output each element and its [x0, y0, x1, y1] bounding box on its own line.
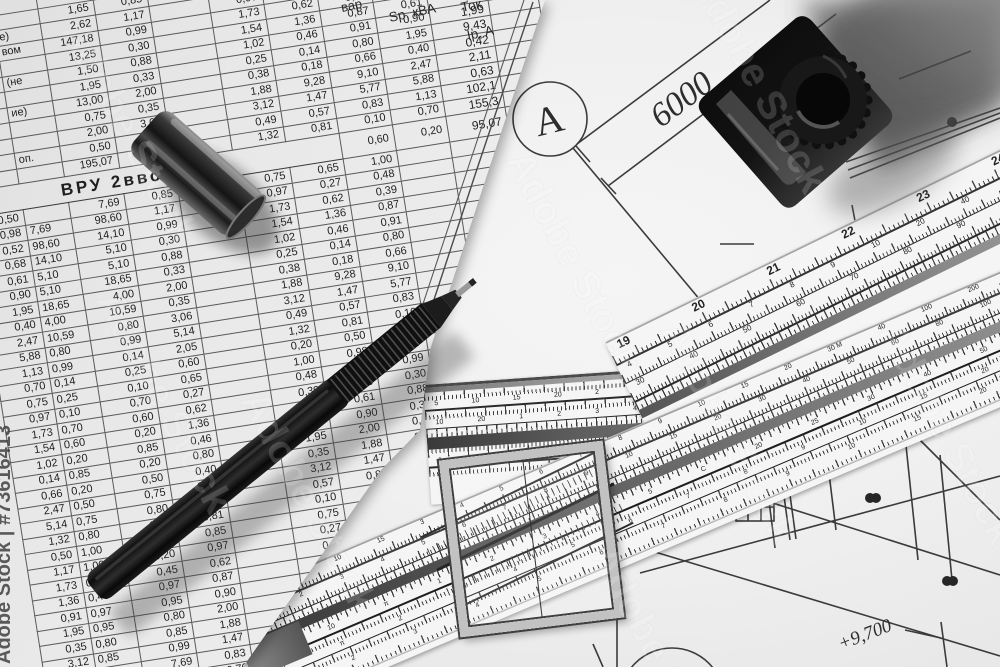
svg-text:Ip, A: Ip, A [466, 23, 496, 43]
svg-text:Sp, кВА: Sp, кВА [388, 0, 438, 25]
svg-text:Adobe Stock: Adobe Stock [497, 144, 651, 381]
svg-text:Adobe Stock | #73616413: Adobe Stock | #73616413 [0, 425, 15, 664]
svg-text:Adobe Stock: Adobe Stock [87, 284, 241, 521]
svg-text:Ток: Ток [460, 0, 483, 15]
svg-text:вар: вар [340, 0, 364, 15]
svg-text:Adobe Stock: Adobe Stock [582, 539, 736, 667]
svg-text:Adobe Stock: Adobe Stock [870, 316, 1000, 553]
svg-text:Adobe Stock: Adobe Stock [652, 314, 806, 551]
